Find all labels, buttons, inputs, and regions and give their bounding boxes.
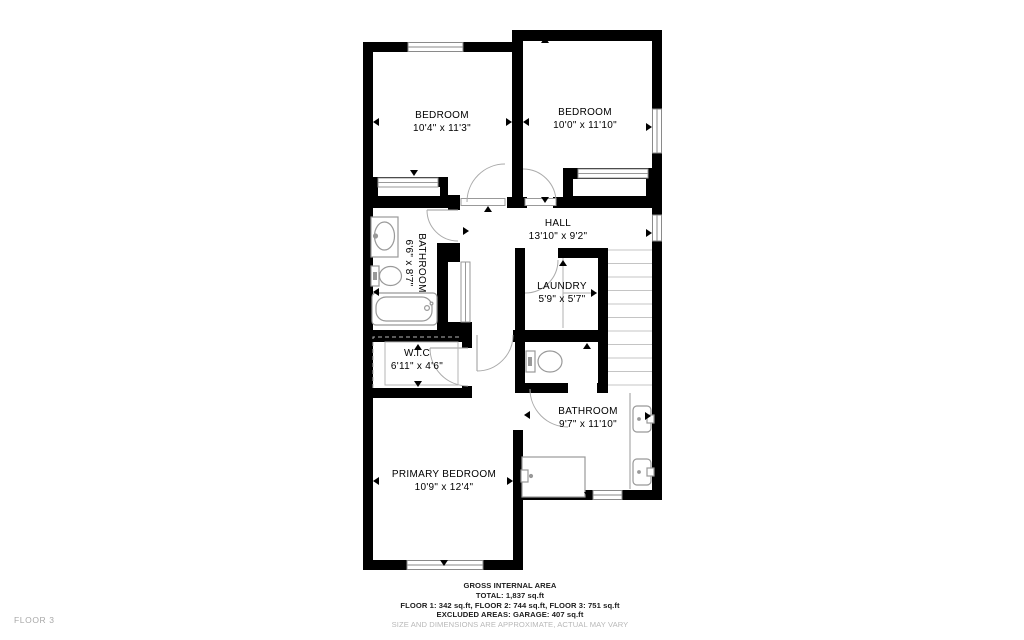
floor-plan-canvas (0, 0, 1024, 640)
room-dims: 5'9" x 5'7" (537, 293, 587, 306)
window (408, 43, 463, 52)
bathtub (372, 293, 437, 325)
vanity-sink (633, 459, 654, 485)
closet-bedroom-2 (563, 168, 652, 198)
wall-segment (437, 243, 460, 262)
toilet (371, 266, 402, 286)
door-swing (461, 164, 505, 206)
door-swing (477, 335, 513, 371)
room-dims: 6'6" x 8'7" (402, 233, 415, 292)
room-dims: 9'7" x 11'10" (558, 418, 617, 431)
window (593, 491, 622, 500)
wall-segment (363, 197, 460, 208)
shower (521, 457, 585, 497)
room-name: BATHROOM (558, 405, 617, 418)
wall-segment (597, 383, 608, 393)
window (653, 109, 662, 153)
room-label-primary-bedroom: PRIMARY BEDROOM 10'9" x 12'4" (392, 468, 496, 494)
wall-segment (520, 383, 568, 393)
door-swing (523, 169, 556, 206)
room-dims: 10'4" x 11'3" (413, 122, 471, 135)
room-name: W.I.C (391, 347, 443, 360)
room-name: BEDROOM (413, 109, 471, 122)
wall-segment (507, 197, 527, 208)
total-area: TOTAL: 1,837 sq.ft (0, 591, 1020, 601)
door-swing (427, 210, 458, 241)
room-label-bathroom-1: BATHROOM 6'6" x 8'7" (402, 233, 428, 292)
room-label-bedroom-2: BEDROOM 10'0" x 11'10" (553, 106, 617, 132)
vanity-sink (633, 406, 654, 432)
wall-segment (363, 330, 472, 342)
disclaimer: SIZE AND DIMENSIONS ARE APPROXIMATE, ACT… (0, 620, 1020, 630)
floor-plan-page: BEDROOM 10'4" x 11'3" BEDROOM 10'0" x 11… (0, 0, 1024, 640)
sink-vanity (371, 217, 398, 257)
room-label-bathroom-2: BATHROOM 9'7" x 11'10" (558, 405, 617, 431)
wall-segment (512, 30, 662, 41)
floor-number-label: FLOOR 3 (14, 615, 55, 625)
wall-segment (515, 248, 525, 342)
wall-segment (462, 330, 472, 348)
room-name: HALL (529, 217, 588, 230)
wall-segment (437, 262, 448, 322)
wall-segment (652, 30, 662, 500)
stair-treads (608, 250, 652, 385)
room-label-bedroom-1: BEDROOM 10'4" x 11'3" (413, 109, 471, 135)
floor-areas: FLOOR 1: 342 sq.ft, FLOOR 2: 744 sq.ft, … (0, 601, 1020, 611)
room-dims: 10'9" x 12'4" (392, 481, 496, 494)
closet-bedroom-1 (370, 177, 448, 198)
gross-internal-area-heading: GROSS INTERNAL AREA (0, 581, 1020, 591)
room-name: BEDROOM (553, 106, 617, 119)
room-label-hall: HALL 13'10" x 9'2" (529, 217, 588, 243)
linen-closet (461, 262, 470, 322)
wall-segment (515, 330, 608, 342)
toilet (526, 351, 562, 372)
wall-segment (512, 30, 523, 208)
room-dims: 10'0" x 11'10" (553, 119, 617, 132)
room-name: LAUNDRY (537, 280, 587, 293)
wall-segment (598, 248, 608, 393)
area-summary: GROSS INTERNAL AREA TOTAL: 1,837 sq.ft F… (0, 581, 1020, 630)
stairs (608, 250, 652, 385)
excluded-areas: EXCLUDED AREAS: GARAGE: 407 sq.ft (0, 610, 1020, 620)
room-dims: 13'10" x 9'2" (529, 230, 588, 243)
room-name: PRIMARY BEDROOM (392, 468, 496, 481)
room-label-laundry: LAUNDRY 5'9" x 5'7" (537, 280, 587, 306)
window (653, 215, 662, 241)
room-dims: 6'11" x 4'6" (391, 360, 443, 373)
wall-segment (448, 195, 460, 210)
wall-segment (363, 388, 472, 398)
room-name: BATHROOM (415, 233, 428, 292)
room-label-wic: W.I.C 6'11" x 4'6" (391, 347, 443, 373)
wall-segment (553, 197, 652, 208)
